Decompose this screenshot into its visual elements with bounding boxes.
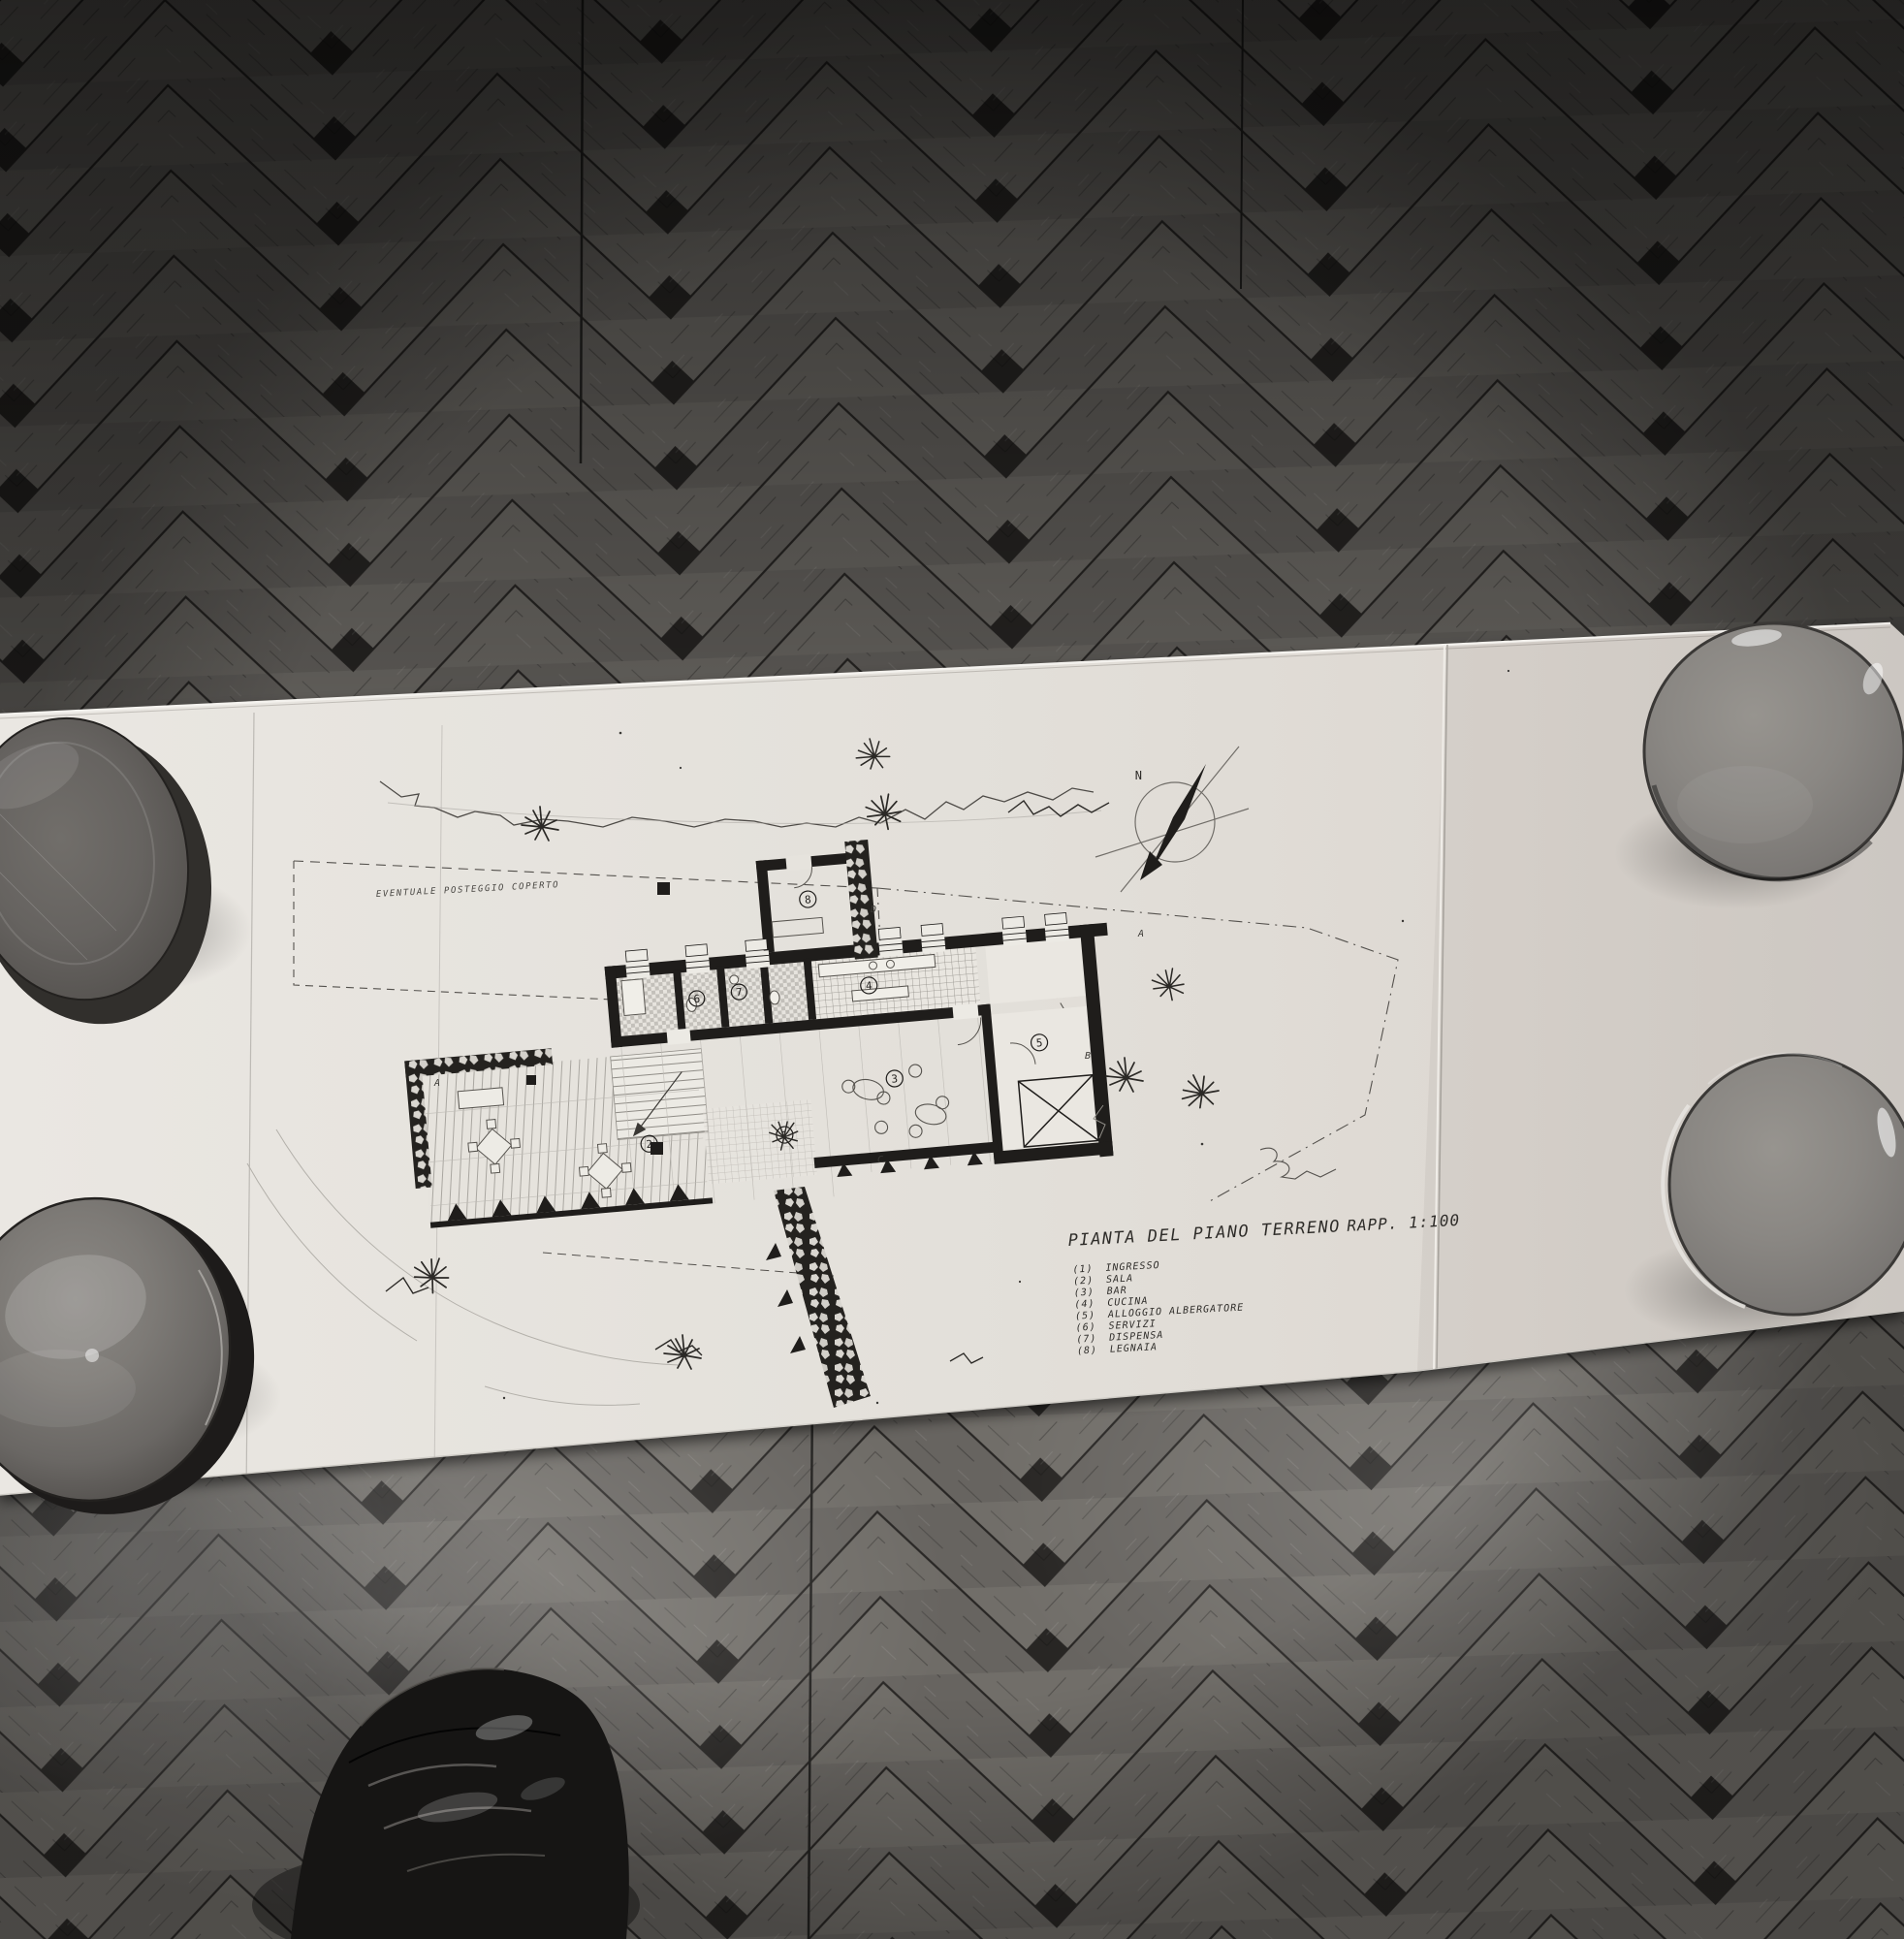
svg-text:A: A: [433, 1078, 440, 1089]
svg-text:B: B: [1085, 1051, 1091, 1062]
svg-text:(7): (7): [1076, 1333, 1097, 1345]
svg-text:C: C: [877, 1155, 883, 1165]
svg-text:6: 6: [693, 993, 701, 1006]
svg-text:3: 3: [891, 1072, 899, 1086]
svg-text:(8): (8): [1077, 1345, 1098, 1356]
svg-text:(1): (1): [1072, 1264, 1094, 1276]
bowl-top-right: [1644, 623, 1904, 879]
column-mark: [657, 882, 670, 895]
svg-text:BAR: BAR: [1106, 1286, 1127, 1297]
svg-text:A: A: [1137, 929, 1144, 939]
svg-text:D: D: [870, 905, 876, 915]
svg-text:(5): (5): [1075, 1311, 1096, 1322]
svg-text:(3): (3): [1074, 1287, 1095, 1299]
column-mark: [526, 1075, 536, 1085]
svg-text:CUCINA: CUCINA: [1107, 1296, 1149, 1309]
svg-text:(6): (6): [1075, 1321, 1096, 1333]
svg-text:(4): (4): [1074, 1299, 1095, 1311]
column-mark: [651, 1142, 663, 1155]
svg-text:(2): (2): [1073, 1276, 1095, 1287]
svg-text:7: 7: [736, 986, 744, 1000]
svg-text:SALA: SALA: [1106, 1273, 1134, 1285]
compass-north-label: N: [1135, 769, 1142, 782]
svg-text:5: 5: [1035, 1036, 1043, 1050]
photo-scene: N EVENTUALE POSTEGGIO COPERTO: [0, 0, 1904, 1939]
svg-text:8: 8: [804, 893, 811, 906]
photo-canvas: N EVENTUALE POSTEGGIO COPERTO: [0, 0, 1904, 1939]
